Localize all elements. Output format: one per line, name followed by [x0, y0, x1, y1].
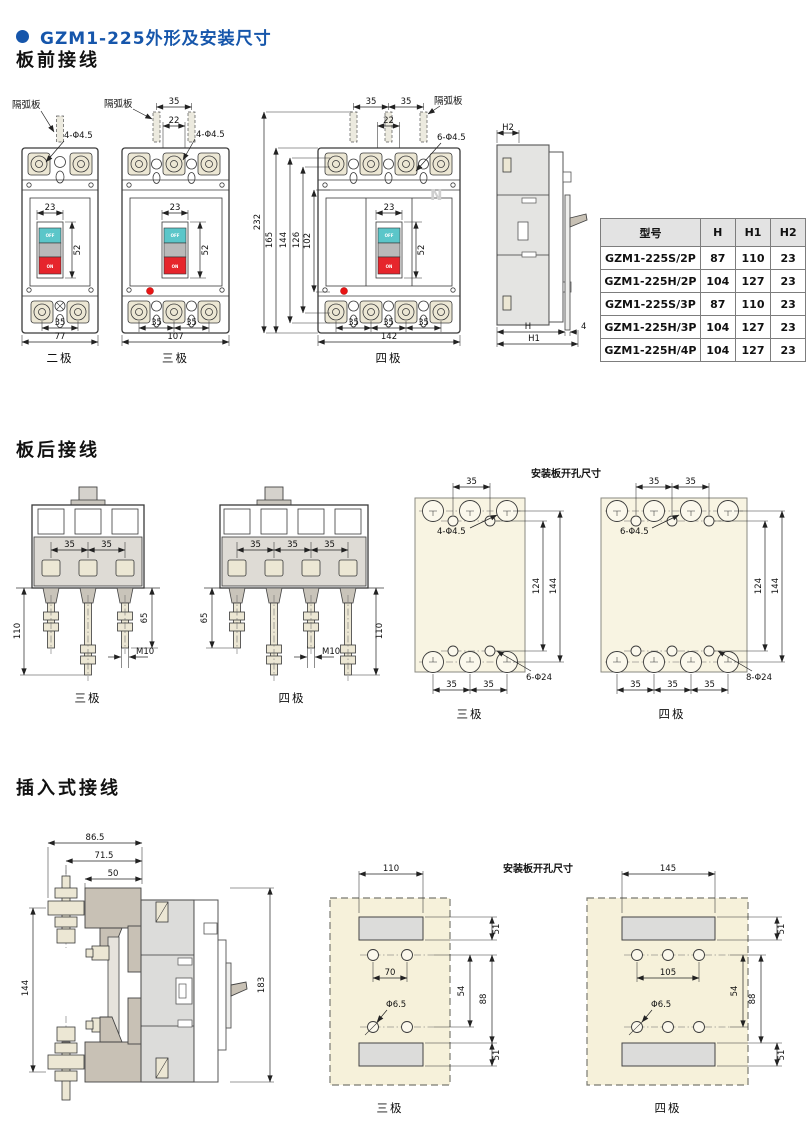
rear-view-3pole: 35 35 110 65 M10 三极	[13, 487, 160, 705]
dim-v65: 65	[140, 613, 150, 624]
diagram-label-4pole: 四极	[376, 351, 403, 365]
dim-h: H	[525, 322, 531, 332]
dim-s51t: 51	[777, 924, 787, 935]
dim-v126: 126	[292, 232, 302, 248]
indicator-dot	[341, 288, 348, 295]
dim-v144: 144	[771, 578, 781, 594]
dim-top-pitch1: 35	[649, 477, 660, 487]
dim-handle-h: 52	[201, 245, 211, 256]
arc-plate-label: 隔弧板	[12, 99, 41, 111]
dim-top-pitch1: 35	[366, 97, 377, 107]
dim-v65: 65	[200, 613, 210, 624]
dim-width: 142	[381, 332, 397, 342]
dim-pitch2: 35	[667, 680, 678, 690]
indicator-dot	[147, 288, 154, 295]
side-view: H2 H 4 H1	[497, 123, 587, 347]
technical-drawing-canvas: OFF ON 隔弧板 4-Φ4.5 23 52 35 77	[0, 0, 806, 1140]
dim-865: 86.5	[86, 833, 105, 843]
dim-top-pitch: 35	[466, 477, 477, 487]
dim-pitch2: 35	[383, 318, 394, 328]
dim-pitch1: 35	[630, 680, 641, 690]
dim-s51b: 51	[777, 1050, 787, 1061]
dim-pitch3: 35	[324, 540, 335, 550]
dim-v102: 102	[303, 233, 313, 249]
dim-v183: 183	[257, 977, 267, 993]
front-view-3pole: OFF ON 隔弧板 35 22 4-Φ4.5 23	[104, 97, 229, 365]
plugin-plate-4pole: 145 105 Φ6.5 51 54 88 51 四极	[587, 864, 787, 1115]
diagram-label-3pole: 三极	[377, 1101, 404, 1115]
dim-50: 50	[108, 869, 119, 879]
dim-thread: M10	[136, 647, 154, 657]
dim-pitch1: 35	[348, 318, 359, 328]
dim-width: 107	[167, 332, 183, 342]
dim-holes: 4-Φ4.5	[196, 130, 225, 140]
dim-pitch: 70	[385, 968, 396, 978]
dim-s51t: 51	[492, 924, 502, 935]
dim-v54: 54	[457, 986, 467, 997]
dim-pitch: 105	[660, 968, 676, 978]
dim-top-pitch: 35	[169, 97, 180, 107]
dim-top-gap: 22	[383, 116, 394, 126]
dim-big-holes: 6-Φ24	[526, 673, 552, 683]
arc-plate-label: 隔弧板	[434, 95, 463, 107]
plate-title: 安装板开孔尺寸	[531, 467, 601, 480]
diagram-label-4pole: 四极	[279, 691, 306, 705]
dim-top-pitch2: 35	[685, 477, 696, 487]
plugin-side-view: 86.5 71.5 50 144	[21, 833, 274, 1100]
dim-big-holes: 8-Φ24	[746, 673, 772, 683]
dim-pitch: 35	[55, 318, 66, 328]
dim-width: 77	[55, 332, 66, 342]
dim-v88: 88	[748, 994, 758, 1005]
dim-v124: 124	[754, 578, 764, 594]
on-text: ON	[47, 264, 54, 269]
dim-v124: 124	[532, 578, 542, 594]
off-text: OFF	[46, 233, 55, 238]
dim-top-gap: 22	[169, 116, 180, 126]
diagram-label-3pole: 三极	[457, 707, 484, 721]
dim-pitch3: 35	[418, 318, 429, 328]
rear-mounting-plate-3pole: 安装板开孔尺寸 35 4-Φ4.5 124 144 6-Φ24	[415, 467, 601, 721]
dim-width: 110	[383, 864, 399, 874]
plate-title: 安装板开孔尺寸	[503, 862, 573, 875]
mounting-plate-edge	[565, 195, 570, 330]
dim-pitch2: 35	[101, 540, 112, 550]
diagram-label-3pole: 三极	[162, 351, 189, 365]
plugin-bracket-bottom	[85, 1042, 141, 1082]
dim-h2: H2	[502, 123, 514, 133]
arc-plate-strip	[188, 112, 195, 142]
dim-pitch1: 35	[151, 318, 162, 328]
toggle-handle	[570, 214, 587, 227]
dim-holes: 6-Φ4.5	[437, 133, 466, 143]
dim-v110: 110	[375, 623, 385, 639]
diagram-label-2pole: 二极	[47, 351, 74, 365]
on-text: ON	[386, 264, 393, 269]
dim-width: 145	[660, 864, 676, 874]
dim-pitch3: 35	[704, 680, 715, 690]
dim-handle-w: 23	[170, 203, 181, 213]
busbar-slot	[622, 1043, 715, 1066]
side-cover	[549, 152, 563, 322]
dim-handle-h: 52	[73, 245, 83, 256]
dim-thread: M10	[322, 647, 340, 657]
neutral-pole-letter: N	[430, 186, 443, 204]
dim-v144: 144	[549, 578, 559, 594]
diagram-label-4pole: 四极	[659, 707, 686, 721]
busbar-slot	[359, 917, 423, 940]
dim-v165: 165	[265, 232, 275, 248]
dim-h1: H1	[528, 334, 540, 344]
dim-v88: 88	[479, 994, 489, 1005]
off-text: OFF	[171, 233, 180, 238]
arc-plate-strip	[153, 112, 160, 142]
dim-hole: Φ6.5	[386, 1000, 406, 1010]
busbar-slot	[359, 1043, 423, 1066]
dim-pitch2: 35	[483, 680, 494, 690]
dim-holes: 4-Φ4.5	[64, 131, 93, 141]
dim-top-pitch2: 35	[401, 97, 412, 107]
front-view-2pole: OFF ON 隔弧板 4-Φ4.5 23 52 35 77	[12, 99, 98, 365]
dim-715: 71.5	[95, 851, 114, 861]
arc-plate-strip	[57, 116, 64, 142]
plugin-plate-3pole: 安装板开孔尺寸 110 70 Φ6.5 51 54 88 51	[330, 862, 573, 1115]
dim-pitch1: 35	[446, 680, 457, 690]
front-view-4pole: N OFF ON 35 35 2	[253, 95, 466, 365]
dim-gap4: 4	[581, 322, 586, 332]
dim-handle-w: 23	[45, 203, 56, 213]
off-text: OFF	[385, 233, 394, 238]
diagram-label-3pole: 三极	[75, 691, 102, 705]
rear-mounting-plate-4pole: 35 35 6-Φ4.5 124 144 8-Φ24 35 35 35 四极	[601, 477, 785, 721]
dim-pitch2: 35	[186, 318, 197, 328]
dim-v232: 232	[253, 214, 263, 230]
dim-small-holes: 4-Φ4.5	[437, 527, 466, 537]
mounting-plate-3p	[415, 498, 525, 672]
datasheet-page: GZM1-225外形及安装尺寸 板前接线 板后接线 插入式接线 型号 H H1 …	[0, 0, 806, 1140]
rear-view-4pole: 35 35 35 65 110 M10 四极	[200, 487, 385, 705]
on-text: ON	[172, 264, 179, 269]
dim-s51b: 51	[492, 1050, 502, 1061]
dim-v54: 54	[730, 986, 740, 997]
dim-v144: 144	[21, 980, 31, 996]
handle-mid	[39, 243, 61, 257]
dim-handle-w: 23	[384, 203, 395, 213]
handle-mid	[164, 243, 186, 257]
dim-hole: Φ6.5	[651, 1000, 671, 1010]
arc-plate-strip	[420, 112, 427, 142]
arc-plate-label: 隔弧板	[104, 98, 133, 110]
dim-v110: 110	[13, 623, 23, 639]
toggle-handle	[231, 982, 247, 996]
dim-small-holes: 6-Φ4.5	[620, 527, 649, 537]
dim-pitch1: 35	[250, 540, 261, 550]
dim-pitch1: 35	[64, 540, 75, 550]
dim-v144: 144	[279, 232, 289, 248]
busbar-slot	[622, 917, 715, 940]
diagram-label-4pole: 四极	[655, 1101, 682, 1115]
plugin-bracket-top	[85, 888, 141, 928]
arc-plate-strip	[350, 112, 357, 142]
dim-handle-h: 52	[417, 245, 427, 256]
dim-pitch2: 35	[287, 540, 298, 550]
handle-mid	[378, 243, 400, 257]
